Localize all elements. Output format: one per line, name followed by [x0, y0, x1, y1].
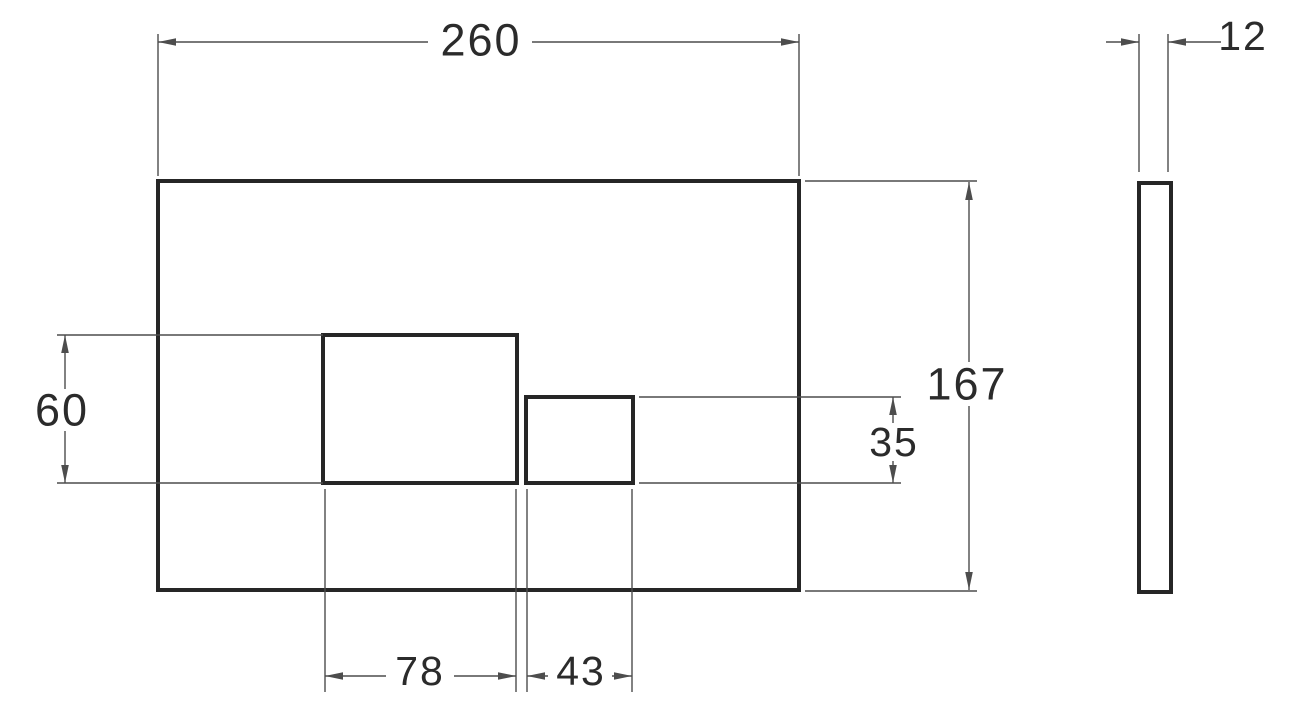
solid-outlines	[158, 181, 1171, 592]
dimension-arrows	[61, 38, 1186, 680]
arrow-down-large-button-height	[61, 465, 69, 483]
arrow-up-small-button-height	[889, 397, 897, 415]
arrow-left-large-button-width	[325, 672, 343, 680]
label-overall-width: 260	[440, 15, 521, 66]
arrow-up-overall-height	[965, 182, 973, 200]
label-small-button-height: 35	[869, 419, 919, 465]
arrow-right-overall-width	[781, 38, 799, 46]
front-view-large-button-outline	[323, 335, 517, 483]
flush-plate-dimension-drawing: 260 12 167 60 35 78 43	[0, 0, 1300, 708]
label-thickness: 12	[1218, 13, 1268, 59]
arrow-left-thickness	[1168, 38, 1186, 46]
label-large-button-width: 78	[395, 648, 445, 694]
arrow-right-thickness	[1121, 38, 1139, 46]
label-large-button-height: 60	[35, 385, 89, 436]
arrow-down-small-button-height	[889, 465, 897, 483]
front-view-small-button-outline	[526, 397, 633, 483]
label-small-button-width: 43	[556, 648, 606, 694]
front-view-plate-outline	[158, 181, 799, 590]
arrow-right-small-button-width	[614, 672, 632, 680]
dimension-lines	[57, 34, 1221, 692]
arrow-left-small-button-width	[527, 672, 545, 680]
technical-drawing-canvas: 260 12 167 60 35 78 43	[0, 0, 1300, 708]
label-overall-height: 167	[926, 359, 1007, 410]
arrow-up-large-button-height	[61, 335, 69, 353]
arrow-right-large-button-width	[498, 672, 516, 680]
arrow-left-overall-width	[158, 38, 176, 46]
arrow-down-overall-height	[965, 572, 973, 590]
side-view-plate-outline	[1139, 183, 1171, 592]
